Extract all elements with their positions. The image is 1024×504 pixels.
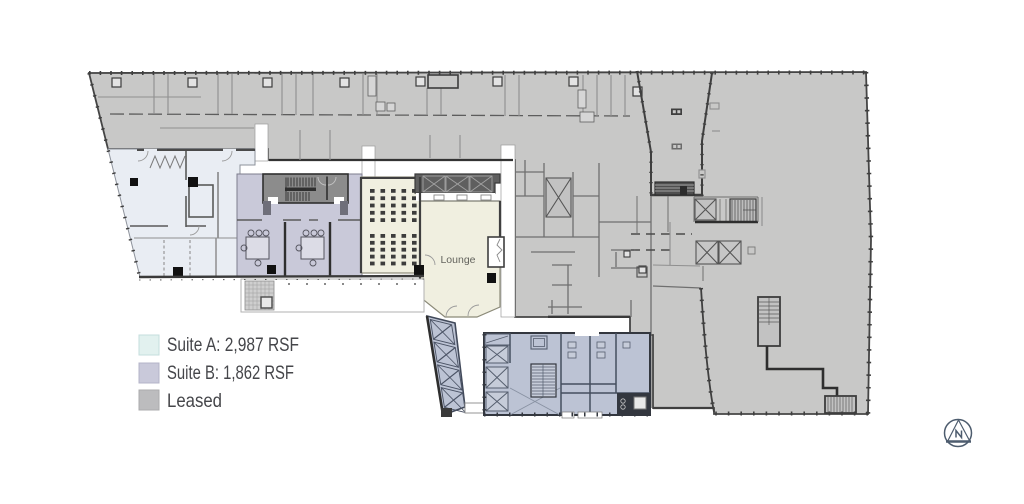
svg-text:Leased: Leased (167, 390, 222, 412)
svg-text:Suite A: 2,987 RSF: Suite A: 2,987 RSF (167, 334, 299, 356)
svg-text:Suite B: 1,862 RSF: Suite B: 1,862 RSF (167, 362, 294, 384)
svg-text:Lounge: Lounge (440, 254, 475, 266)
